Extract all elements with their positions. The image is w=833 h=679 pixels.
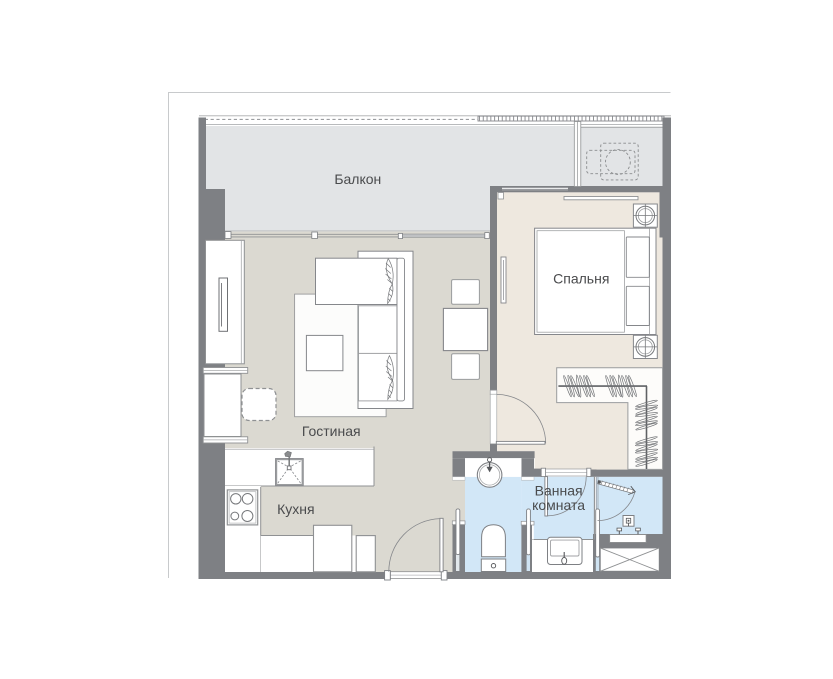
svg-text:комната: комната [532,497,585,513]
svg-text:Гостиная: Гостиная [302,423,361,439]
svg-text:Спальня: Спальня [553,270,609,286]
svg-text:Ванная: Ванная [535,483,583,499]
svg-text:Балкон: Балкон [334,171,381,187]
svg-text:Кухня: Кухня [277,501,314,517]
